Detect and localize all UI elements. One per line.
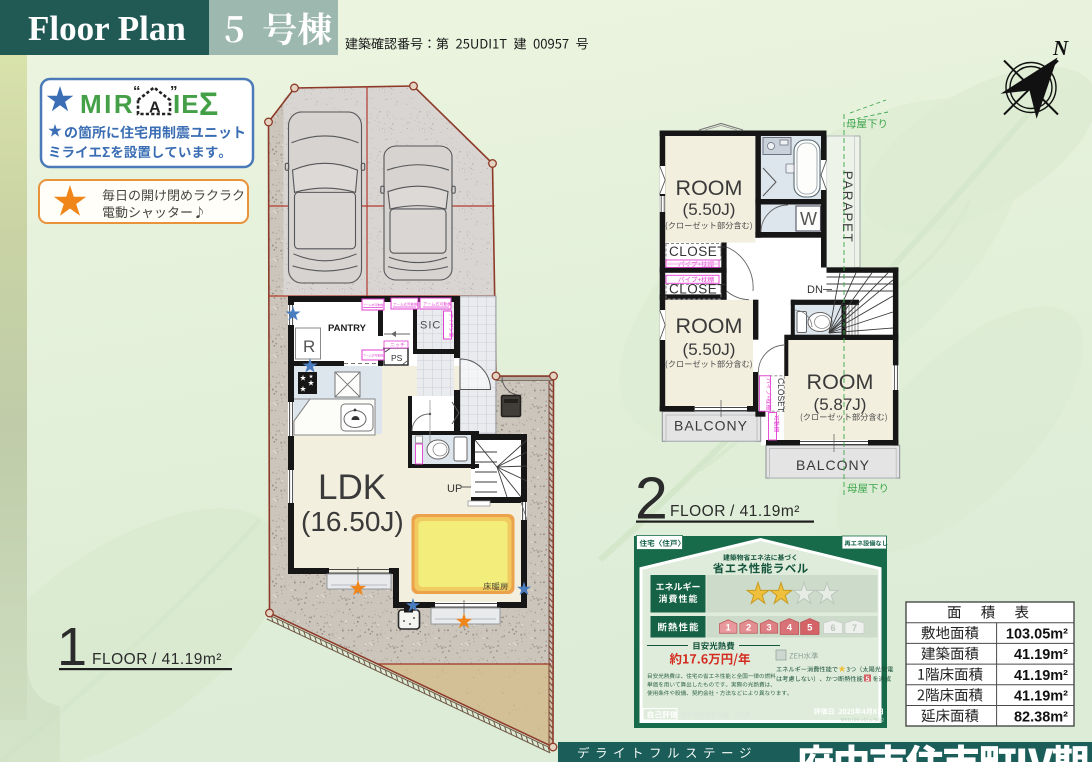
svg-text:(5.50J): (5.50J) [683, 200, 736, 219]
svg-text:SIC: SIC [420, 320, 441, 332]
svg-text:BALCONY: BALCONY [674, 418, 748, 434]
svg-text:“: “ [133, 83, 141, 100]
svg-text:82.38m²: 82.38m² [1014, 709, 1068, 725]
svg-text:/ 41.19m²: / 41.19m² [730, 503, 800, 520]
svg-text:ROOM: ROOM [676, 314, 743, 338]
svg-text:6: 6 [830, 623, 835, 633]
svg-text:ROOM: ROOM [807, 370, 874, 394]
svg-text:CLOSET: CLOSET [669, 244, 726, 259]
svg-text:UP: UP [447, 483, 462, 495]
svg-text:7: 7 [852, 623, 857, 633]
svg-text:(16.50J): (16.50J) [301, 506, 404, 537]
svg-text:R: R [303, 337, 315, 356]
svg-text:BALCONY: BALCONY [796, 457, 870, 473]
svg-text:FLOOR: FLOOR [670, 503, 726, 520]
svg-text:PARAPET: PARAPET [840, 171, 855, 244]
svg-text:W: W [800, 209, 817, 229]
svg-text:3: 3 [766, 623, 771, 634]
svg-text:(5.50J): (5.50J) [683, 340, 736, 359]
svg-text:Floor Plan: Floor Plan [28, 9, 186, 48]
svg-text:41.19m²: 41.19m² [1014, 668, 1068, 684]
svg-text:Σ: Σ [199, 86, 218, 122]
svg-text:N: N [1052, 36, 1069, 60]
svg-text:(5.87J): (5.87J) [814, 395, 867, 414]
svg-text:A: A [149, 100, 161, 117]
svg-text:/ 41.19m²: / 41.19m² [152, 651, 222, 668]
svg-text:41.19m²: 41.19m² [1014, 647, 1068, 663]
svg-text:”: ” [170, 83, 178, 100]
svg-text:ROOM: ROOM [676, 176, 743, 200]
svg-text:DN: DN [807, 284, 823, 296]
svg-text:CLOSET: CLOSET [776, 378, 786, 412]
svg-text:MIR: MIR [80, 89, 135, 119]
svg-text:41.19m²: 41.19m² [1014, 689, 1068, 705]
svg-text:5: 5 [807, 623, 813, 634]
svg-text:103.05m²: 103.05m² [1006, 627, 1068, 643]
svg-text:FLOOR: FLOOR [92, 651, 148, 668]
svg-text:PS: PS [391, 353, 403, 363]
svg-text:2: 2 [746, 623, 751, 634]
svg-text:1: 1 [726, 623, 732, 634]
svg-text:4: 4 [787, 623, 793, 634]
svg-text:CLOSET: CLOSET [669, 282, 726, 297]
svg-text:LDK: LDK [318, 468, 386, 507]
svg-text:5: 5 [866, 676, 870, 683]
svg-text:PANTRY: PANTRY [328, 323, 367, 334]
